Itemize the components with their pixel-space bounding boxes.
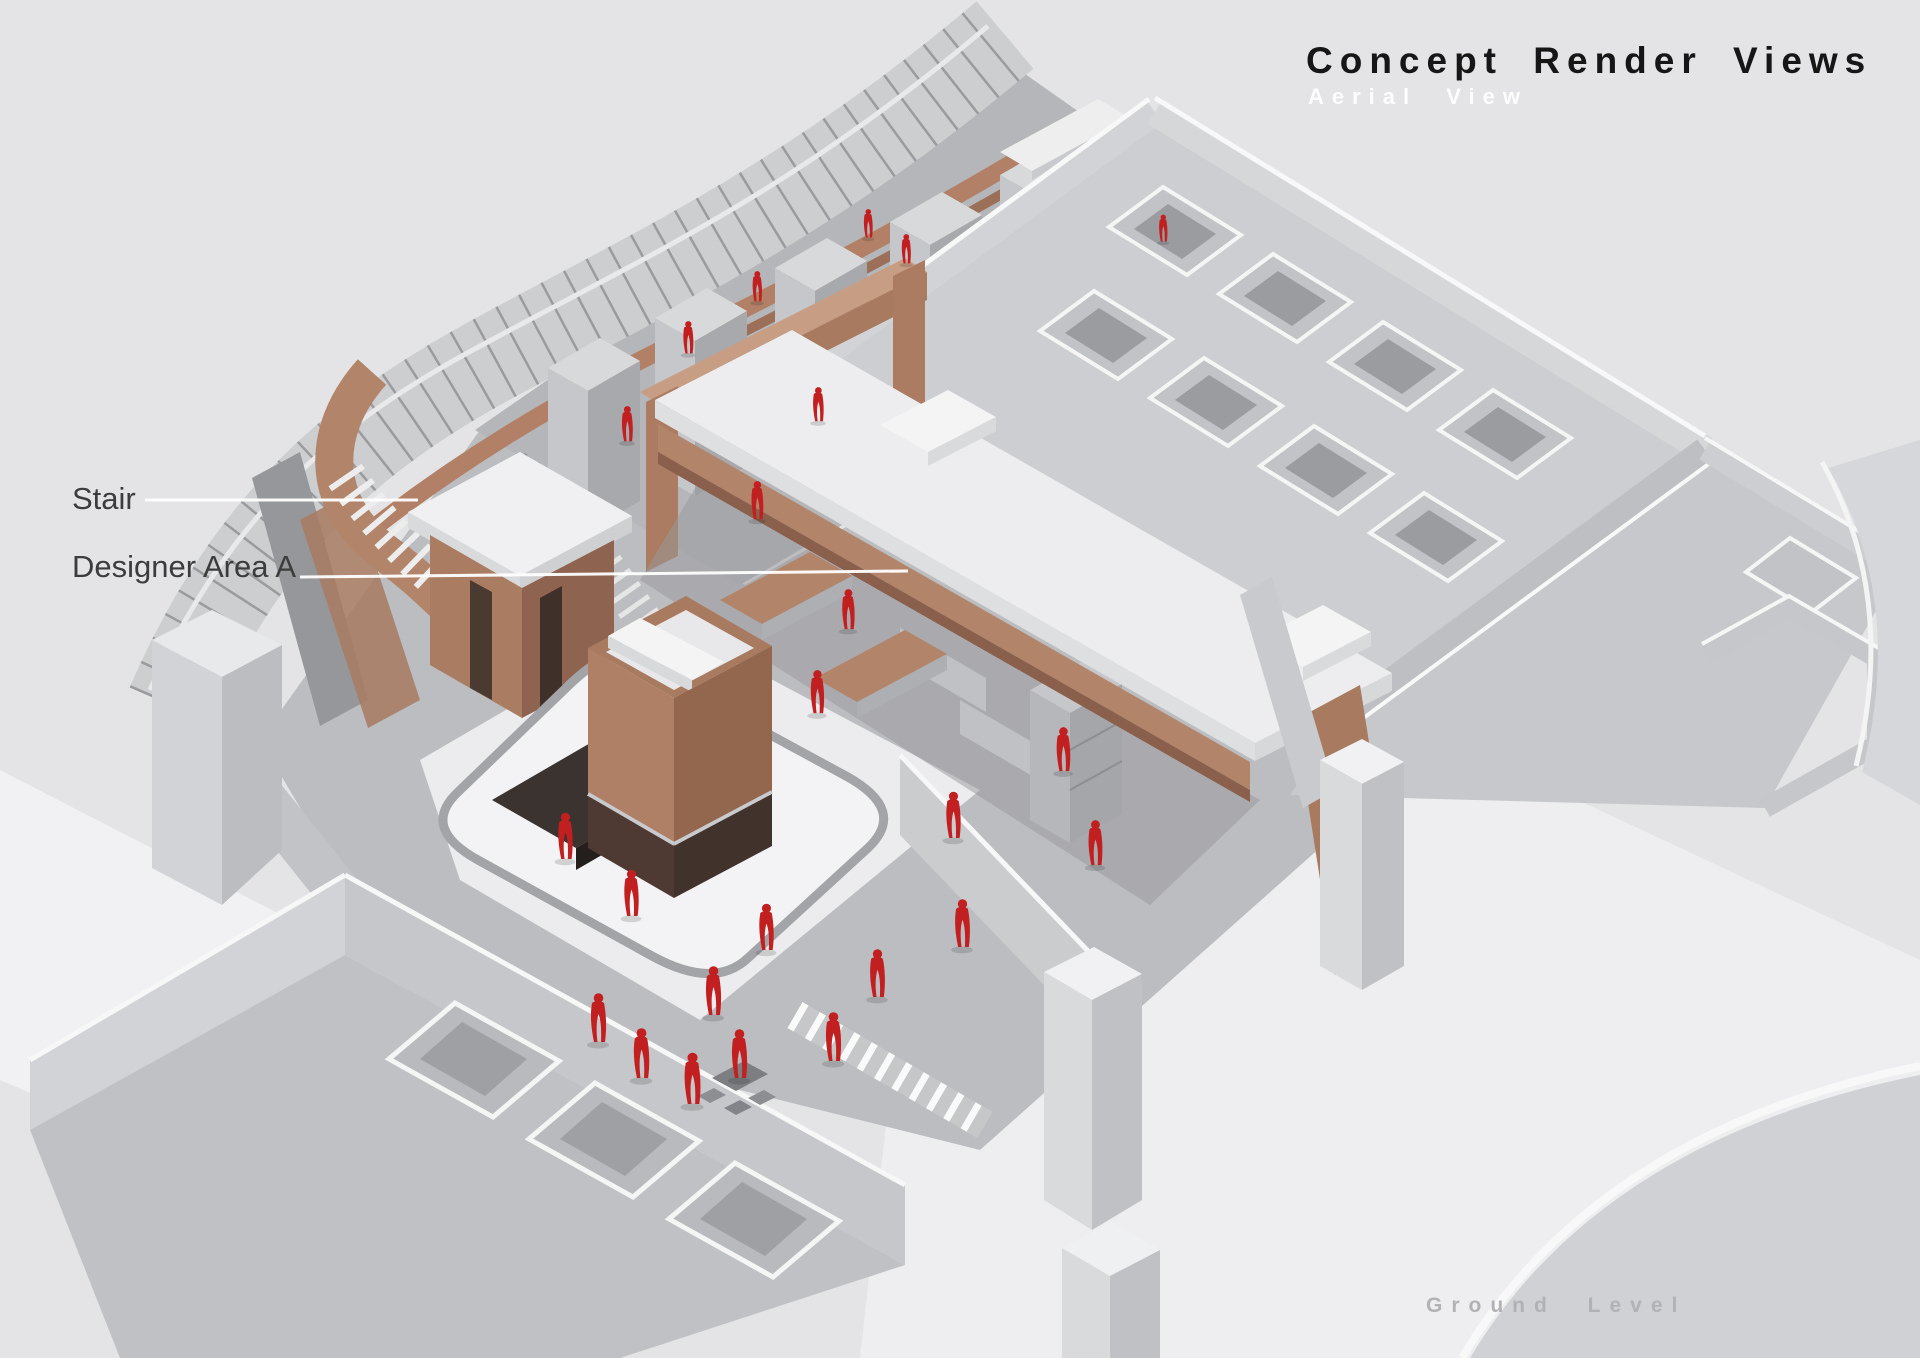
aerial-render-scene (0, 0, 1920, 1358)
stair-label: Stair (72, 481, 136, 517)
page-title: Concept Render Views (1306, 40, 1872, 82)
copper-tower-main (588, 596, 772, 898)
freestanding-pillar (152, 610, 282, 905)
designer-area-label: Designer Area A (72, 549, 296, 585)
plaza-pillar (1320, 739, 1404, 990)
plaza-pillar (1044, 947, 1142, 1230)
view-subtitle: Aerial View (1308, 84, 1528, 110)
concept-render-slide: Concept Render Views Aerial View Stair D… (0, 0, 1920, 1358)
ground-level-label: Ground Level (1426, 1294, 1686, 1318)
plaza-pillar (1062, 1222, 1160, 1358)
